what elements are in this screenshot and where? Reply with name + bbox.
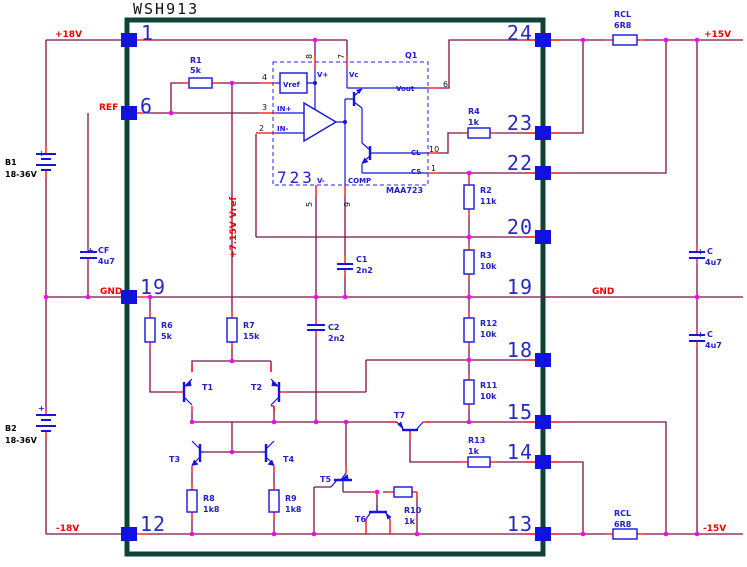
pin-square-22 xyxy=(535,166,551,180)
transistor-t6-icon xyxy=(366,505,392,520)
vref-block-label: Vref xyxy=(283,81,301,89)
label-rcl-bottom-name: RCL xyxy=(614,509,631,518)
pin-label-19-left: 19 xyxy=(140,275,166,299)
label-b1-plus: + xyxy=(38,149,45,158)
label-c-bottom-name: C xyxy=(707,330,713,339)
pin-label-13: 13 xyxy=(507,512,533,536)
ic-pin-cl: CL xyxy=(411,149,421,157)
label-vref-rail: +7.15V Vref xyxy=(229,197,239,258)
label-r9-value: 1k8 xyxy=(285,505,302,514)
label-r6-value: 5k xyxy=(161,332,173,341)
label-c2-value: 2n2 xyxy=(328,334,345,343)
resistor-r9-body xyxy=(269,490,279,512)
ic-pinnum-2: 2 xyxy=(259,124,264,133)
label-r3-value: 10k xyxy=(480,262,497,271)
schematic-canvas: WSH913 xyxy=(0,0,747,567)
label-c-bottom-plus: + xyxy=(697,330,704,339)
pin-label-24: 24 xyxy=(507,21,533,45)
ic-pinnum-6: 6 xyxy=(443,80,448,89)
ic-pin-vout: Vout xyxy=(396,85,415,93)
label-r11-name: R11 xyxy=(480,381,498,390)
ic-pin-comp: COMP xyxy=(348,177,371,185)
pin-label-22: 22 xyxy=(507,151,533,175)
pin-square-18 xyxy=(535,353,551,367)
label-b1-name: B1 xyxy=(5,158,17,167)
ic-pinnum-9: 9 xyxy=(343,202,352,207)
ic-part-number: MAA723 xyxy=(386,186,423,195)
resistor-r11-body xyxy=(464,380,474,404)
label-plus18v: +18V xyxy=(55,30,82,40)
label-t5: T5 xyxy=(320,475,331,484)
pin-label-15: 15 xyxy=(507,400,533,424)
pin-square-23 xyxy=(535,126,551,140)
label-t7: T7 xyxy=(394,411,405,420)
label-r13-value: 1k xyxy=(468,447,480,456)
pin-square-14 xyxy=(535,455,551,469)
ic-limit-transistor-icon xyxy=(362,143,371,164)
resistor-r2-body xyxy=(464,185,474,209)
resistor-r10-body xyxy=(394,487,412,497)
resistor-r1-body xyxy=(189,78,212,88)
resistor-r8-body xyxy=(187,490,197,512)
label-rcl-top-name: RCL xyxy=(614,10,631,19)
transistor-t5-icon xyxy=(331,473,352,487)
opamp-triangle-icon xyxy=(304,103,336,141)
capacitor-c2-icon xyxy=(307,325,325,330)
resistor-rcl-bottom-body xyxy=(613,529,637,539)
schematic-title: WSH913 xyxy=(133,0,199,18)
label-b2-plus: + xyxy=(38,404,45,413)
pin-label-18: 18 xyxy=(507,338,533,362)
module-boundary xyxy=(127,20,543,554)
label-r2-name: R2 xyxy=(480,186,492,195)
ic-maa723: Vref 723 MAA723 Q1 V+ Vc Vout CL CS V- C… xyxy=(259,51,448,207)
pin-label-23: 23 xyxy=(507,111,533,135)
ic-label: 723 xyxy=(277,168,315,187)
label-ref: REF xyxy=(99,103,118,113)
label-r12-name: R12 xyxy=(480,319,497,328)
label-r4-name: R4 xyxy=(468,107,480,116)
label-b2-value: 18-36V xyxy=(5,436,38,445)
ic-output-transistor-icon xyxy=(354,89,362,109)
label-plus15v: +15V xyxy=(704,30,731,40)
pin-square-15 xyxy=(535,415,551,429)
resistor-r3-body xyxy=(464,250,474,274)
pin-square-6 xyxy=(121,106,137,120)
ic-pinnum-4: 4 xyxy=(262,73,267,82)
resistor-r12-body xyxy=(464,318,474,342)
transistor-symbols xyxy=(184,379,423,520)
label-c-top-value: 4u7 xyxy=(705,258,722,267)
label-r12-value: 10k xyxy=(480,330,497,339)
ic-pinnum-3: 3 xyxy=(262,103,267,112)
ic-pin-inn: IN- xyxy=(277,125,288,133)
label-t1: T1 xyxy=(202,383,213,392)
ic-pin-inp: IN+ xyxy=(277,105,291,113)
label-t3: T3 xyxy=(169,455,180,464)
schematic-page: WSH913 xyxy=(0,0,747,567)
pin-label-19-right: 19 xyxy=(507,275,533,299)
pin-square-19 xyxy=(121,290,137,304)
ic-pinnum-10: 10 xyxy=(429,145,439,154)
ic-pin-vplus: V+ xyxy=(317,71,328,79)
pin-square-24 xyxy=(535,33,551,47)
pin-label-6: 6 xyxy=(140,94,153,118)
resistor-rcl-top-body xyxy=(613,35,637,45)
resistor-r6-body xyxy=(145,318,155,342)
pin-label-12: 12 xyxy=(140,512,166,536)
resistor-r4-body xyxy=(468,128,490,138)
label-c-bottom-value: 4u7 xyxy=(705,341,722,350)
label-rcl-top-value: 6R8 xyxy=(614,21,632,30)
transistor-t7-icon xyxy=(397,422,423,433)
pin-square-13 xyxy=(535,527,551,541)
label-r10-name: R10 xyxy=(404,506,422,515)
pin-label-14: 14 xyxy=(507,440,533,464)
label-r4-value: 1k xyxy=(468,118,480,127)
ic-designator: Q1 xyxy=(405,51,418,60)
label-rcl-bottom-value: 6R8 xyxy=(614,520,632,529)
label-cf-name: CF xyxy=(98,246,109,255)
label-r1-value: 5k xyxy=(190,66,202,75)
pin-square-20 xyxy=(535,230,551,244)
label-c-top-name: C xyxy=(707,247,713,256)
label-r7-value: 15k xyxy=(243,332,260,341)
label-r13-name: R13 xyxy=(468,436,485,445)
label-r6-name: R6 xyxy=(161,321,173,330)
label-b2-name: B2 xyxy=(5,424,17,433)
ic-pinnum-8: 8 xyxy=(305,54,314,59)
ic-pin-cs: CS xyxy=(411,168,421,176)
label-gnd-left: GND xyxy=(100,287,122,297)
label-minus15v: -15V xyxy=(703,524,726,534)
ic-pin-vminus: V- xyxy=(317,177,325,185)
capacitor-c1-icon xyxy=(337,264,353,269)
label-c-top-plus: + xyxy=(697,247,704,256)
transistor-t4-icon xyxy=(261,441,275,466)
transistor-t2-icon xyxy=(271,379,279,405)
resistor-bodies xyxy=(145,35,637,539)
ic-pinnum-5: 5 xyxy=(305,202,314,207)
label-r7-name: R7 xyxy=(243,321,255,330)
label-c1-value: 2n2 xyxy=(356,266,373,275)
ic-pinnum-7: 7 xyxy=(337,54,346,59)
transistor-t3-icon xyxy=(192,441,206,466)
label-r2-value: 11k xyxy=(480,197,497,206)
label-r9-name: R9 xyxy=(285,494,297,503)
label-gnd-right: GND xyxy=(592,287,614,297)
pin-label-20: 20 xyxy=(507,215,533,239)
label-cf-value: 4u7 xyxy=(98,257,115,266)
label-r8-value: 1k8 xyxy=(203,505,220,514)
pin-square-1 xyxy=(121,33,137,47)
label-t2: T2 xyxy=(251,383,262,392)
resistor-r13-body xyxy=(468,457,490,467)
label-r10-value: 1k xyxy=(404,517,416,526)
label-r3-name: R3 xyxy=(480,251,492,260)
battery-b2-icon xyxy=(36,415,56,431)
label-t4: T4 xyxy=(283,455,294,464)
label-cf-plus: + xyxy=(87,246,94,255)
label-t6: T6 xyxy=(355,515,366,524)
label-r11-value: 10k xyxy=(480,392,497,401)
pin-square-12 xyxy=(121,527,137,541)
ic-pinnum-1: 1 xyxy=(431,164,436,173)
label-c2-name: C2 xyxy=(328,323,339,332)
label-r8-name: R8 xyxy=(203,494,215,503)
label-minus18v: -18V xyxy=(56,524,79,534)
label-b1-value: 18-36V xyxy=(5,170,38,179)
resistor-r7-body xyxy=(227,318,237,342)
label-r1-name: R1 xyxy=(190,56,202,65)
ic-pin-vc: Vc xyxy=(349,71,359,79)
label-c1-name: C1 xyxy=(356,255,368,264)
pin-label-1: 1 xyxy=(141,21,154,45)
transistor-t1-icon xyxy=(184,379,192,405)
